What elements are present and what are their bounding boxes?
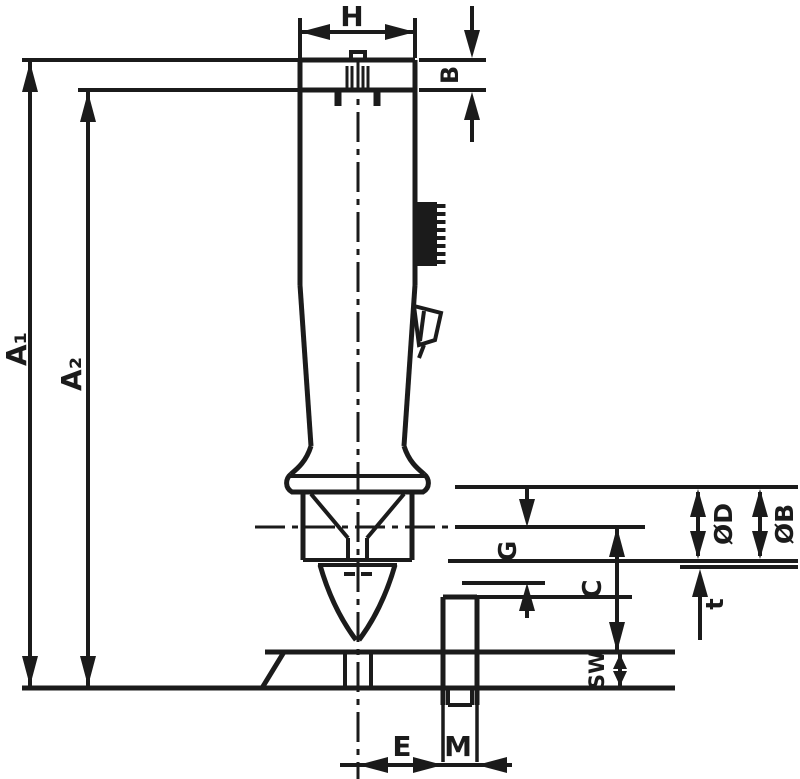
technical-drawing: H B A₁ A₂ G C SW bbox=[0, 0, 800, 779]
label-a2: A₂ bbox=[55, 357, 88, 391]
arrowhead-up bbox=[464, 92, 480, 120]
label-b: B bbox=[436, 66, 464, 84]
dimension-a2: A₂ bbox=[55, 92, 96, 686]
label-dia-b: ØB bbox=[770, 504, 799, 544]
knurl-patch bbox=[415, 202, 441, 266]
arrowhead-up bbox=[690, 489, 706, 517]
arrowhead-down bbox=[80, 656, 96, 686]
valve-dimension-diagram: H B A₁ A₂ G C SW bbox=[0, 0, 800, 779]
label-dia-d: ØD bbox=[709, 503, 738, 545]
dimension-a1: A₁ bbox=[0, 62, 38, 686]
dimension-e-m: E M bbox=[340, 730, 512, 773]
arrowhead-down bbox=[22, 656, 38, 686]
arrowhead-right-stud bbox=[413, 757, 443, 773]
dimension-sw: SW bbox=[585, 651, 627, 689]
dimension-dia-d: ØD bbox=[690, 489, 738, 559]
cone-left bbox=[320, 565, 356, 640]
arrowhead-up bbox=[80, 92, 96, 122]
label-e: E bbox=[392, 730, 411, 763]
centerlines bbox=[255, 62, 468, 779]
dimension-dia-b: ØB bbox=[752, 489, 799, 559]
arrowhead-down bbox=[690, 531, 706, 559]
bell-left bbox=[291, 446, 311, 474]
arrowhead-up bbox=[22, 62, 38, 92]
arrowhead-left bbox=[300, 24, 330, 40]
label-g: G bbox=[493, 541, 522, 562]
arrowhead-down bbox=[464, 30, 480, 58]
arrowhead-down bbox=[752, 531, 768, 559]
side-clip-body bbox=[414, 306, 441, 345]
arrowhead-up bbox=[692, 569, 708, 597]
side-clip bbox=[414, 306, 441, 358]
label-h: H bbox=[340, 0, 363, 33]
arrowhead-left-centerline bbox=[358, 757, 388, 773]
side-clip-detail bbox=[420, 311, 424, 341]
dimension-t: t bbox=[692, 569, 729, 640]
taper-left bbox=[300, 285, 311, 446]
arrowhead-right bbox=[385, 24, 415, 40]
side-clip-tail bbox=[419, 345, 424, 358]
arrowhead-up bbox=[613, 654, 627, 669]
arrowhead-left-stud bbox=[477, 757, 507, 773]
plate-left-slant bbox=[262, 652, 284, 688]
arrowhead-up bbox=[752, 489, 768, 517]
outlet-stud-foot bbox=[448, 688, 472, 705]
label-t: t bbox=[701, 598, 729, 609]
arrowhead-up bbox=[609, 527, 625, 557]
dimension-b: B bbox=[436, 6, 480, 142]
cone-right bbox=[359, 565, 395, 640]
label-m: M bbox=[444, 730, 472, 763]
dimension-h: H bbox=[300, 0, 415, 40]
arrowhead-down bbox=[609, 622, 625, 652]
label-a1: A₁ bbox=[0, 332, 33, 366]
label-sw: SW bbox=[585, 651, 609, 689]
dimension-c: C bbox=[578, 527, 625, 652]
bell-right bbox=[404, 446, 424, 474]
arrowhead-down bbox=[519, 499, 535, 527]
valve-body-outline bbox=[22, 52, 675, 762]
arrowhead-down bbox=[613, 671, 627, 686]
knurl-solid bbox=[415, 202, 437, 266]
label-c: C bbox=[578, 579, 608, 598]
